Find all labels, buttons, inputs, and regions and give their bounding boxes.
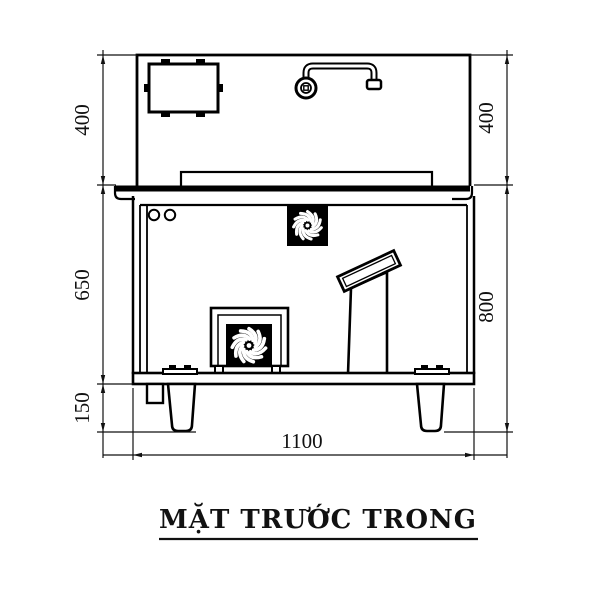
- countertop: [115, 186, 472, 199]
- drawing-title-block: MẶT TRƯỚC TRONG: [159, 502, 478, 539]
- chimney: [338, 251, 401, 374]
- hob-plate: [181, 172, 432, 187]
- dim-label-left-bottom: 150: [70, 392, 94, 424]
- dim-label-right-bottom: 800: [474, 291, 498, 323]
- technical-drawing-front-view: 400 650 150 400 800 1100 MẶT TRƯỚC TRONG: [0, 0, 600, 600]
- drawing-title: MẶT TRƯỚC TRONG: [159, 502, 477, 535]
- faucet-icon: [296, 66, 381, 98]
- control-box-icon: [144, 59, 223, 117]
- drain-stub: [147, 384, 163, 403]
- dim-label-left-top: 400: [70, 104, 94, 136]
- upper-fan: [287, 205, 328, 246]
- drawing-page: 400 650 150 400 800 1100 MẶT TRƯỚC TRONG: [0, 0, 600, 600]
- right-leg: [415, 365, 449, 431]
- lower-fan-unit: [211, 308, 288, 374]
- dim-label-bottom-width: 1100: [281, 429, 322, 453]
- dim-label-left-middle: 650: [70, 269, 94, 301]
- left-leg: [163, 365, 197, 431]
- dim-label-right-top: 400: [474, 102, 498, 134]
